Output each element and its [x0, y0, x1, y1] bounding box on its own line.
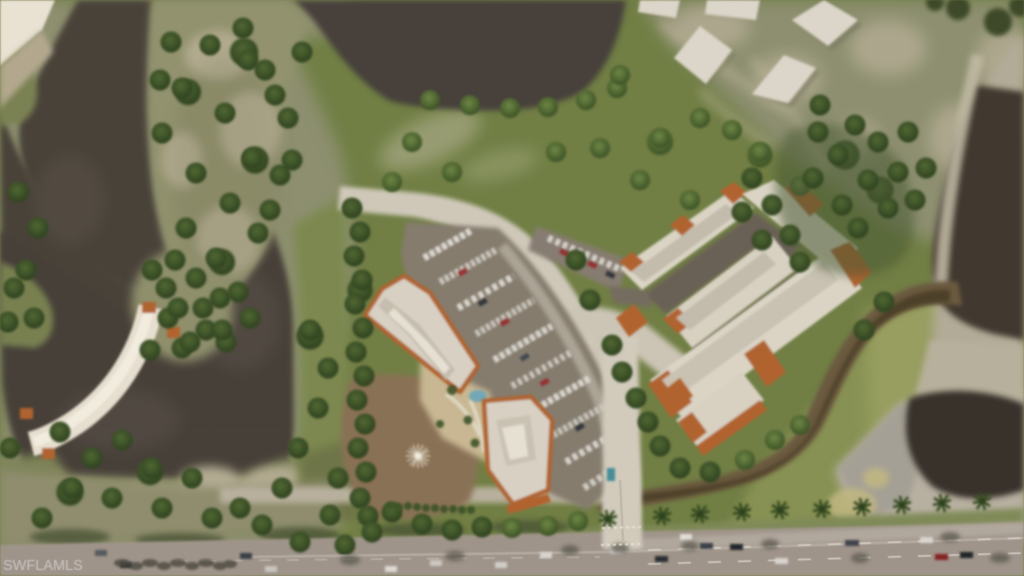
svg-text:SWFLAMLS: SWFLAMLS — [3, 558, 83, 574]
